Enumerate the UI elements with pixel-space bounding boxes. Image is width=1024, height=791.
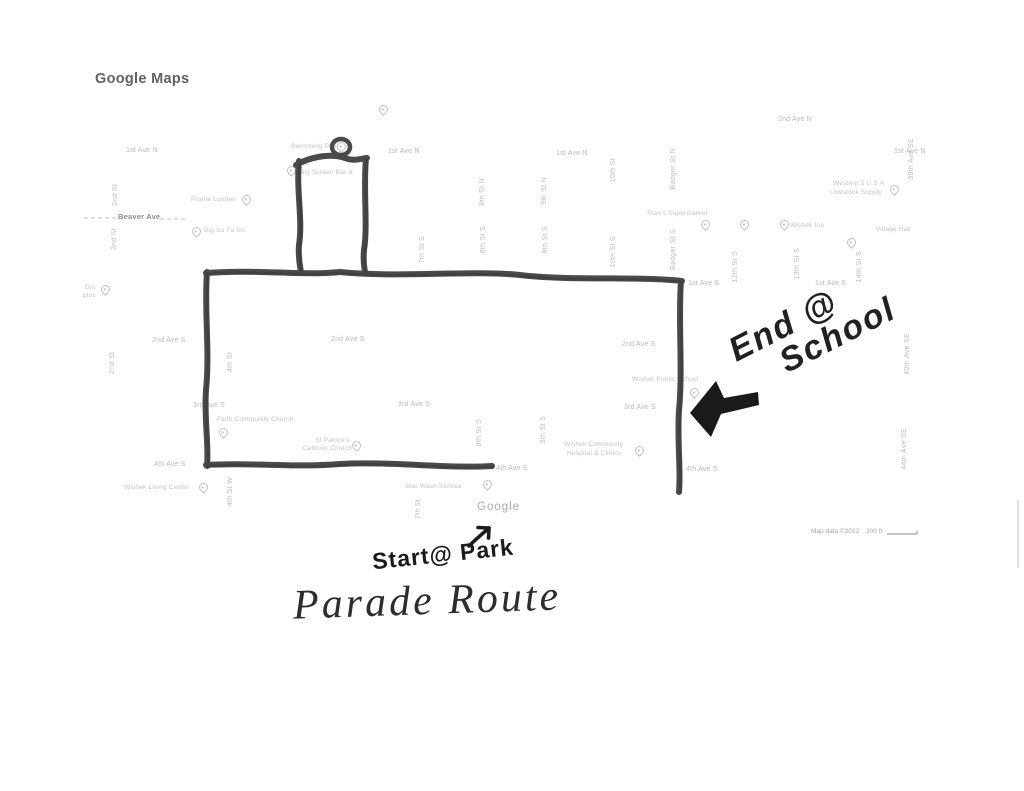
map-data-attribution: Map data ©2022: [811, 528, 859, 535]
parade-route-texture: [206, 159, 682, 493]
dashed-road-line: [84, 218, 188, 219]
google-watermark: Google: [477, 501, 520, 513]
scanned-page: Google Maps 1st Ave N 1st Ave N 1st Ave …: [0, 0, 1024, 791]
handwritten-route-title: Parade Route: [292, 572, 562, 629]
scale-label: 200 ft: [866, 528, 882, 535]
scale-bar: [887, 531, 917, 534]
parade-route-path: [206, 139, 682, 492]
end-arrow-icon: [690, 381, 759, 437]
hand-drawn-route-overlay: [0, 0, 1024, 791]
